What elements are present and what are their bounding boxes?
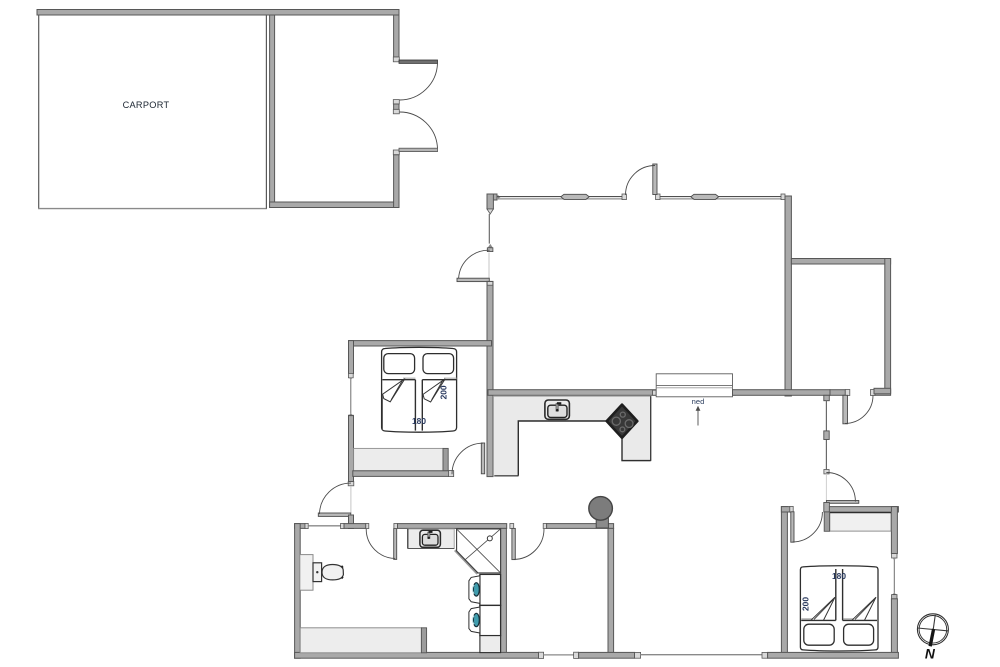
svg-text:200: 200 [800,597,810,611]
svg-text:200: 200 [438,385,448,399]
svg-text:180: 180 [412,416,426,426]
svg-text:CARPORT: CARPORT [123,100,170,110]
svg-text:180: 180 [832,571,846,581]
svg-text:ned: ned [692,397,705,406]
svg-text:N: N [925,647,936,662]
